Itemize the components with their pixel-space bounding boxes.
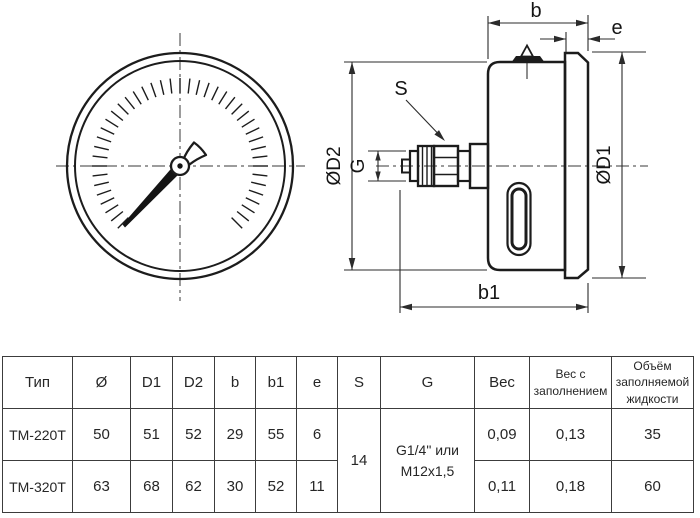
front-view bbox=[56, 33, 305, 301]
header-d2: D2 bbox=[173, 357, 215, 409]
header-b: b bbox=[215, 357, 256, 409]
cell-weight: 0,09 bbox=[475, 409, 530, 461]
dimension-b: b bbox=[488, 0, 588, 59]
cell-b1: 52 bbox=[256, 461, 297, 513]
cell-diameter: 50 bbox=[73, 409, 131, 461]
cell-b: 29 bbox=[215, 409, 256, 461]
cell-s-merged: 14 bbox=[338, 409, 381, 513]
cell-e: 6 bbox=[297, 409, 338, 461]
cell-d2: 52 bbox=[173, 409, 215, 461]
header-s: S bbox=[338, 357, 381, 409]
cell-type: ТМ-320Т bbox=[3, 461, 73, 513]
dimension-d1: ØD1 bbox=[592, 52, 646, 278]
cell-type: ТМ-220Т bbox=[3, 409, 73, 461]
label-d1: ØD1 bbox=[594, 145, 615, 184]
header-weight-filled: Вес с заполнением bbox=[530, 357, 612, 409]
header-weight: Вес bbox=[475, 357, 530, 409]
pointer-hub-center-dot bbox=[177, 163, 182, 168]
technical-drawing-page: ØD2 G b e bbox=[0, 0, 700, 518]
cell-e: 11 bbox=[297, 461, 338, 513]
spec-table: Тип Ø D1 D2 b b1 e S G Вес Вес с заполне… bbox=[2, 356, 694, 513]
cell-d2: 62 bbox=[173, 461, 215, 513]
label-b1: b1 bbox=[478, 282, 500, 304]
label-s: S bbox=[394, 78, 407, 100]
cell-d1: 68 bbox=[131, 461, 173, 513]
label-b: b bbox=[530, 0, 541, 22]
header-d1: D1 bbox=[131, 357, 173, 409]
cell-g-merged: G1/4" или M12x1,5 bbox=[381, 409, 475, 513]
cell-weight-filled: 0,13 bbox=[530, 409, 612, 461]
table-row-tm220t: ТМ-220Т 50 51 52 29 55 6 14 G1/4" или M1… bbox=[3, 409, 694, 461]
cell-weight-filled: 0,18 bbox=[530, 461, 612, 513]
cell-fill-volume: 60 bbox=[612, 461, 694, 513]
header-row: Тип Ø D1 D2 b b1 e S G Вес Вес с заполне… bbox=[3, 357, 694, 409]
slot-window-inner bbox=[512, 189, 526, 249]
g-thread-line2: M12x1,5 bbox=[383, 461, 472, 482]
label-e: e bbox=[611, 17, 622, 39]
vent-valve-triangle bbox=[521, 46, 533, 57]
header-diameter: Ø bbox=[73, 357, 131, 409]
cell-b1: 55 bbox=[256, 409, 297, 461]
label-g: G bbox=[348, 159, 369, 174]
g-thread-line1: G1/4" или bbox=[383, 440, 472, 461]
header-fill-volume: Объём заполняемой жидкости bbox=[612, 357, 694, 409]
cell-d1: 51 bbox=[131, 409, 173, 461]
header-g: G bbox=[381, 357, 475, 409]
callout-s: S bbox=[394, 78, 445, 141]
cell-diameter: 63 bbox=[73, 461, 131, 513]
header-type: Тип bbox=[3, 357, 73, 409]
header-b1: b1 bbox=[256, 357, 297, 409]
cell-b: 30 bbox=[215, 461, 256, 513]
label-d2: ØD2 bbox=[324, 146, 345, 185]
cell-fill-volume: 35 bbox=[612, 409, 694, 461]
header-e: e bbox=[297, 357, 338, 409]
gauge-drawing: ØD2 G b e bbox=[0, 0, 700, 354]
dimension-b1: b1 bbox=[400, 190, 588, 313]
cell-weight: 0,11 bbox=[475, 461, 530, 513]
